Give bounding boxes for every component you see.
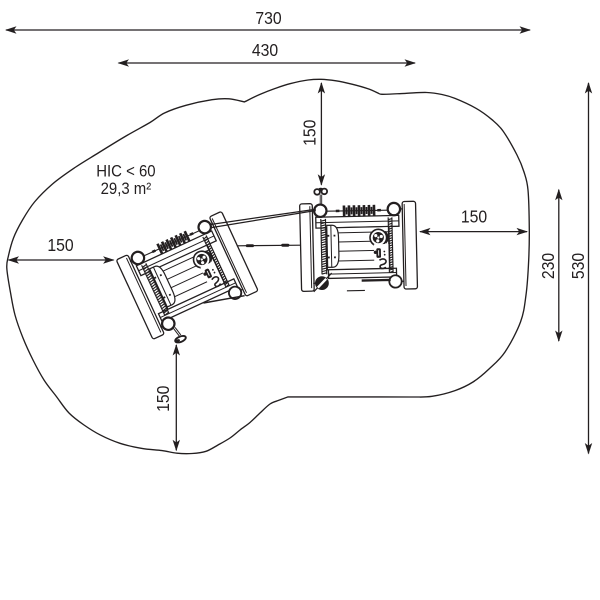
svg-text:730: 730	[255, 8, 281, 28]
svg-text:29,3 m²: 29,3 m²	[101, 180, 152, 198]
svg-text:HIC < 60: HIC < 60	[96, 163, 155, 181]
svg-text:150: 150	[300, 119, 320, 145]
svg-text:150: 150	[461, 207, 487, 227]
svg-text:150: 150	[153, 385, 173, 411]
svg-text:230: 230	[538, 253, 558, 279]
svg-text:150: 150	[47, 235, 73, 255]
svg-text:430: 430	[252, 40, 278, 60]
svg-text:530: 530	[568, 253, 588, 279]
